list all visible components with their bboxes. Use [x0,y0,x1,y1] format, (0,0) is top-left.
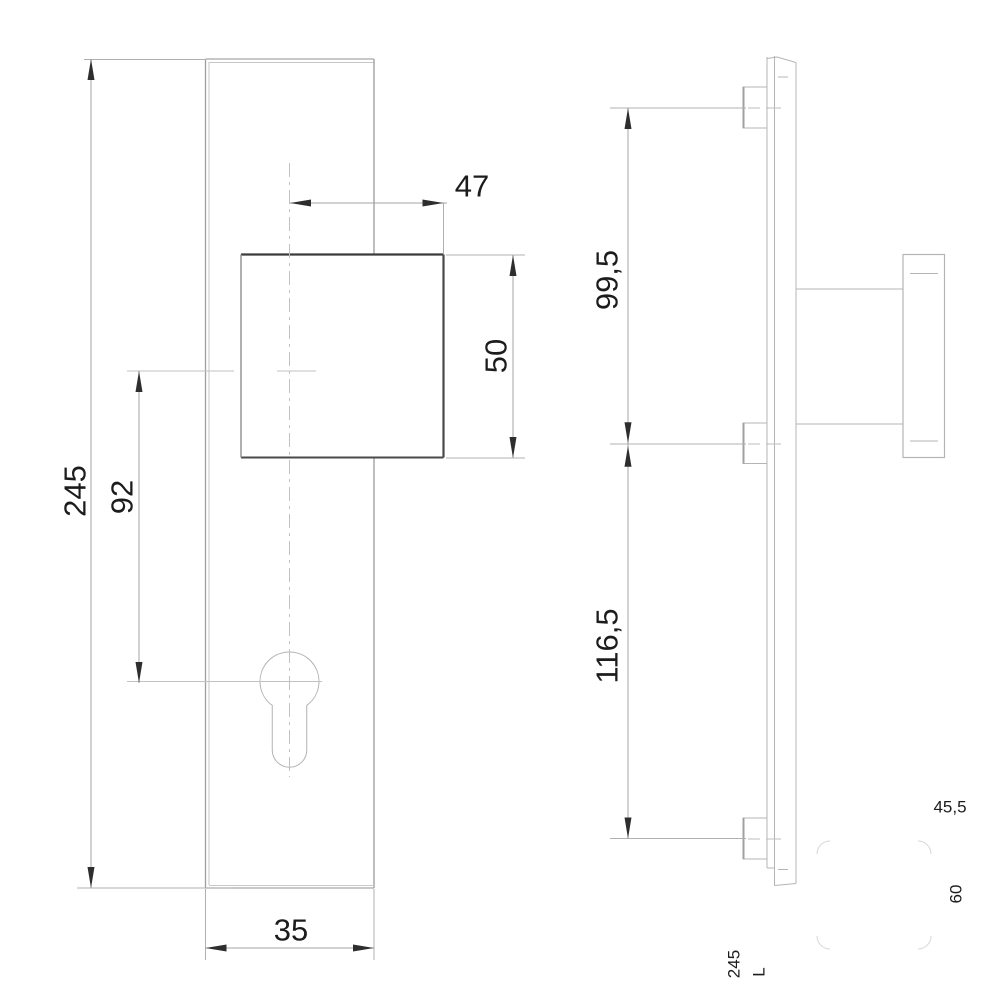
extension-lines [77,60,746,961]
dim-label-plate-width: 35 [274,915,308,946]
margin-note-60: 60 [948,885,965,904]
dim-label-knob-size: 50 [481,339,512,373]
margin-note-l: L [751,967,768,976]
ghost-knob-corners [817,841,931,949]
side-view-knob [796,255,945,458]
dimension-lines [91,59,628,948]
side-view-plate [767,56,796,886]
margin-note-245: 245 [726,950,743,978]
margin-note-45-5: 45,5 [933,799,966,816]
drawing-linework [0,0,1000,1000]
dimension-arrows [88,59,632,952]
dim-label-plate-height: 245 [60,465,91,517]
dim-label-center-to-knob-edge: 47 [455,171,489,202]
dim-label-knob-to-cylinder: 92 [107,480,138,514]
side-view-fixing-lugs [743,87,781,859]
engineering-drawing-canvas: 245 92 47 50 35 99,5 116,5 45,5 60 245 L [0,0,1000,1000]
front-view-knob-square [241,255,444,458]
dim-label-knob-center-to-bottom: 116,5 [592,608,623,683]
dim-label-top-to-knob-center: 99,5 [592,250,623,310]
